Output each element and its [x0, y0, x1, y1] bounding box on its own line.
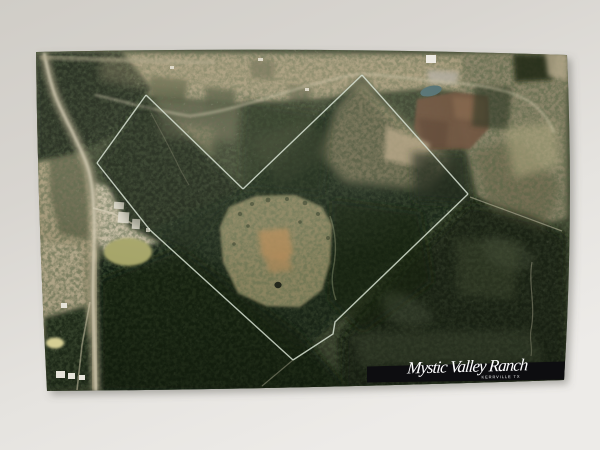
svg-text:KERRVILLE TX: KERRVILLE TX	[481, 374, 520, 380]
